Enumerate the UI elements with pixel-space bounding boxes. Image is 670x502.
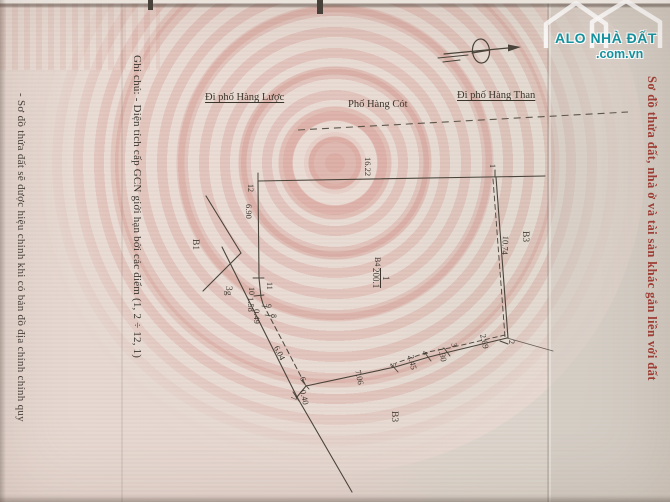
adjacent-structure-lines <box>203 196 352 492</box>
street-label-hang-than: Đi phố Hàng Than <box>457 90 535 101</box>
margin-note: - Sơ đồ thửa đất sẽ được hiệu chỉnh khi … <box>15 93 27 422</box>
north-arrow-icon <box>438 38 521 63</box>
point-number: 7 <box>289 396 298 400</box>
cadastral-drawing <box>0 0 670 502</box>
alo-nha-dat-watermark: ALO NHÀ ĐẤT .com.vn <box>538 0 670 66</box>
point-number: 11 <box>265 282 274 290</box>
brand-text: ALO NHÀ ĐẤT <box>555 30 657 46</box>
point-number: 1 <box>488 164 497 168</box>
block-label: 3g <box>223 286 233 296</box>
dimension-label: 10.74 <box>500 235 511 255</box>
block-label: B1 <box>190 239 200 250</box>
block-label: B3 <box>389 411 399 422</box>
land-plot-document-photo: 16.226.9010.742.691.302.457.060.406.040.… <box>0 0 670 502</box>
dimension-label: 16.22 <box>363 157 373 176</box>
ghi-chu-note: Ghi chú: - Diện tích cấp GCN giới hạn bở… <box>131 55 143 358</box>
dimension-label: 1.58 <box>246 297 256 312</box>
street-label-hang-luoc: Đi phố Hàng Lược <box>205 92 284 103</box>
point-number: 10 <box>247 287 256 295</box>
document-section-title: Sơ đồ thửa đất, nhà ở và tài sản khác gắ… <box>644 76 659 381</box>
point-number: 2 <box>507 340 516 344</box>
parcel-boundary <box>253 170 553 401</box>
block-label: B3 <box>520 231 530 242</box>
parcel-area-value: 200.1 <box>370 268 379 288</box>
street-dashed-line <box>298 112 628 130</box>
point-number: 9 <box>264 304 273 308</box>
parcel-lot-number: 1 <box>380 268 390 288</box>
parcel-block-label: B4 <box>373 257 382 266</box>
street-label-hang-cot: Phố Hàng Cót <box>348 99 408 110</box>
dimension-label: 6.90 <box>244 204 254 219</box>
parcel-area-label: 1 200.1 <box>370 268 390 288</box>
point-number: 8 <box>269 314 278 318</box>
brand-domain-text: .com.vn <box>596 47 643 61</box>
point-number: 12 <box>246 184 255 192</box>
